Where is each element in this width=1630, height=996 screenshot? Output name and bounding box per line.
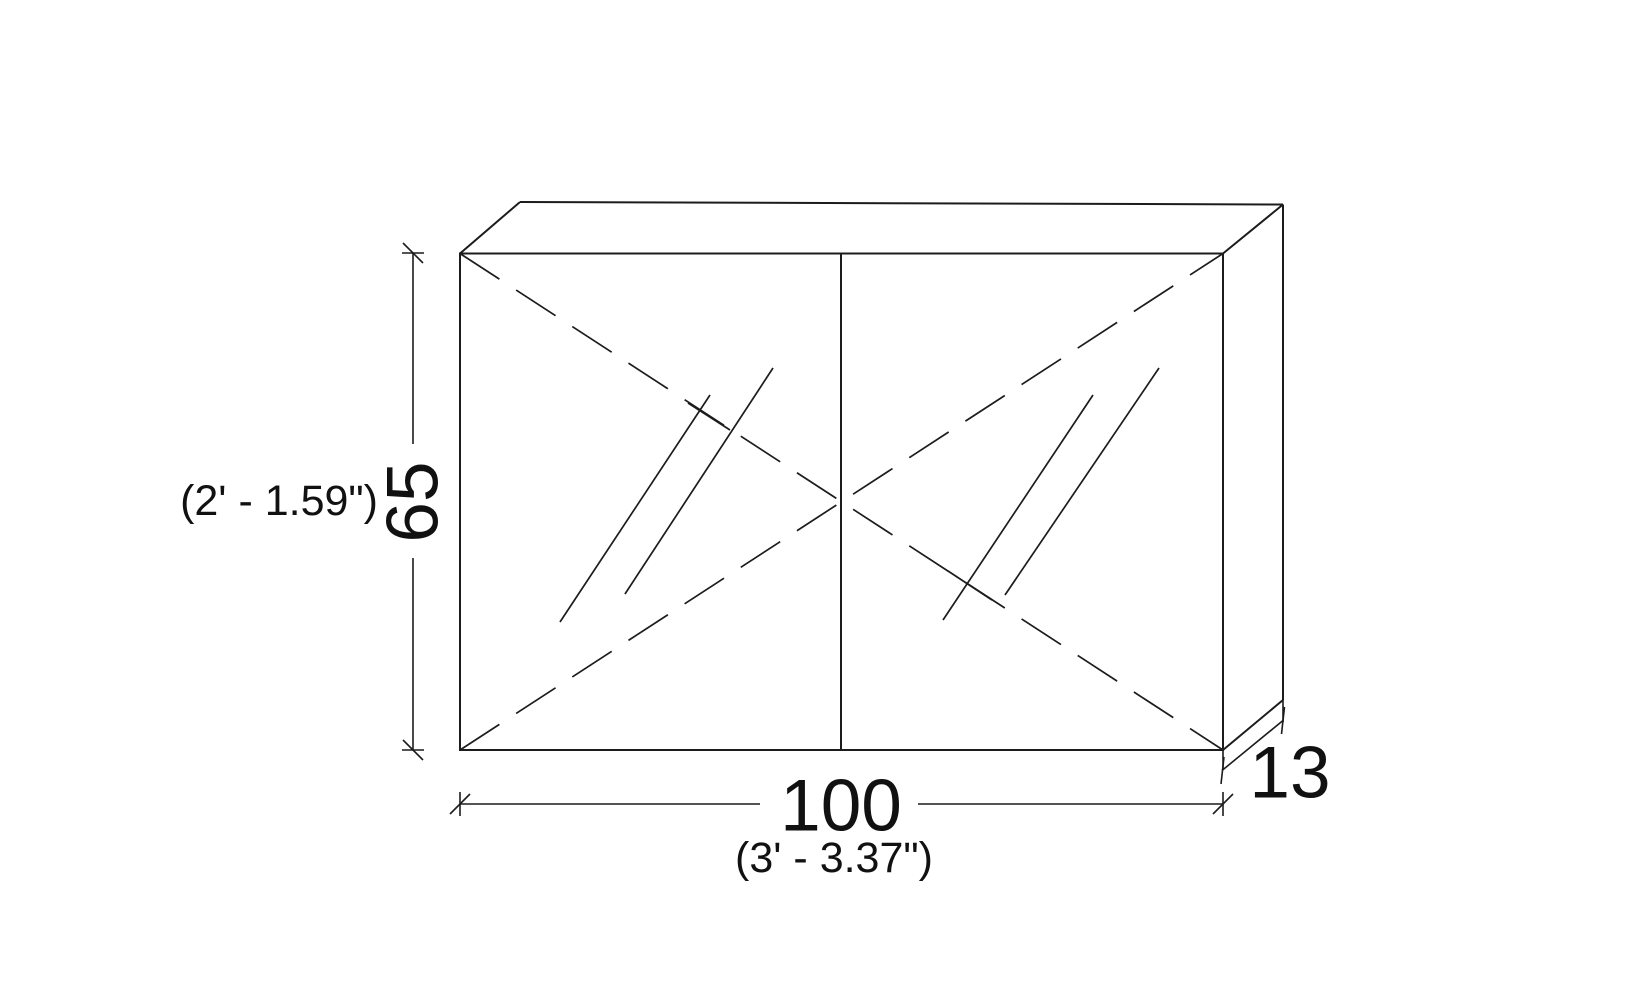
cabinet-dimension-drawing: 65 (2' - 1.59") 100 (3' - 3.37") 13 xyxy=(0,0,1630,996)
left-door-hatch-line-1 xyxy=(560,395,710,622)
height-dimension: 65 (2' - 1.59") xyxy=(180,243,453,760)
right-door-hatch-line-2 xyxy=(1005,368,1159,595)
right-door-hatch-line-1 xyxy=(943,395,1093,620)
mirror-hatch-left-door xyxy=(560,368,773,622)
width-dim-secondary-label: (3' - 3.37") xyxy=(735,834,933,882)
height-dim-secondary-label: (2' - 1.59") xyxy=(180,477,378,525)
depth-dim-primary-label: 13 xyxy=(1249,733,1330,814)
top-face-right-edge xyxy=(1223,205,1283,254)
drawing-canvas: 65 (2' - 1.59") 100 (3' - 3.37") 13 xyxy=(0,0,1630,996)
top-face-back-edge xyxy=(520,202,1283,205)
height-dim-primary-label: 65 xyxy=(373,461,454,542)
width-dimension: 100 (3' - 3.37") xyxy=(450,766,1233,883)
cabinet-outline xyxy=(460,202,1283,750)
left-door-hatch-tick xyxy=(688,403,730,430)
right-door-hatch-tick xyxy=(948,571,992,600)
mirror-hatch-right-door xyxy=(943,368,1159,620)
depth-dimension: 13 xyxy=(1221,700,1331,814)
top-face-left-edge xyxy=(460,202,520,254)
